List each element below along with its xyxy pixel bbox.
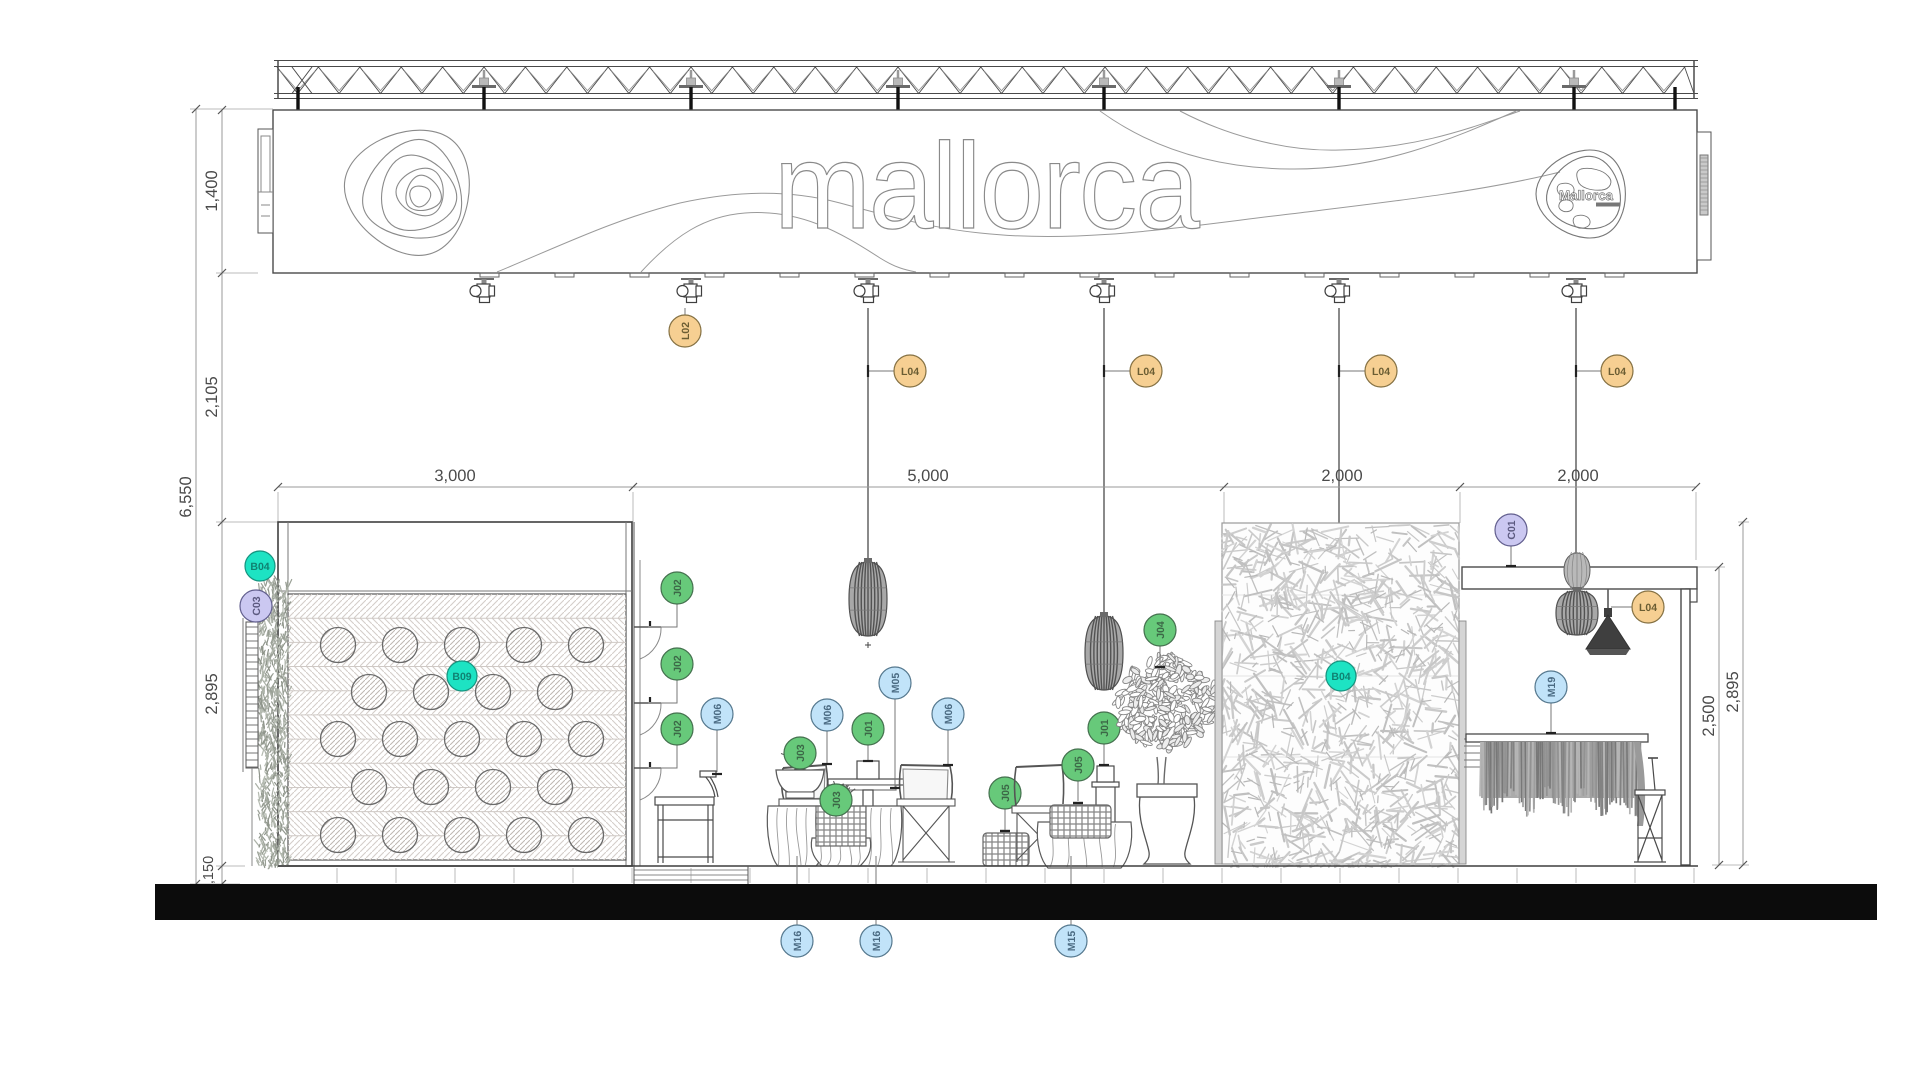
svg-text:M16: M16 (792, 931, 804, 952)
svg-text:J03: J03 (795, 744, 807, 762)
svg-text:2,895: 2,895 (203, 673, 221, 714)
svg-text:J05: J05 (1000, 784, 1012, 802)
svg-text:1,400: 1,400 (203, 170, 221, 211)
svg-text:M06: M06 (943, 704, 955, 725)
svg-text:L02: L02 (680, 322, 692, 340)
svg-text:L04: L04 (1372, 366, 1390, 378)
svg-text:mallorca: mallorca (774, 118, 1200, 254)
svg-text:2,500: 2,500 (1700, 695, 1718, 736)
svg-text:L04: L04 (1639, 602, 1657, 614)
svg-text:J02: J02 (672, 720, 684, 738)
svg-text:J02: J02 (672, 579, 684, 597)
svg-text:J02: J02 (672, 655, 684, 673)
svg-text:6,550: 6,550 (177, 476, 195, 517)
svg-text:M06: M06 (712, 704, 724, 725)
svg-text:J05: J05 (1073, 756, 1085, 774)
svg-text:2,895: 2,895 (1724, 671, 1742, 712)
svg-text:M06: M06 (822, 705, 834, 726)
svg-text:Mallorca: Mallorca (1559, 188, 1613, 203)
svg-text:B04: B04 (1331, 671, 1350, 683)
svg-text:C01: C01 (1506, 520, 1518, 539)
svg-text:5,000: 5,000 (907, 467, 948, 485)
svg-text:M16: M16 (871, 931, 883, 952)
svg-text:L04: L04 (901, 366, 919, 378)
svg-text:M19: M19 (1546, 677, 1558, 698)
svg-text:B04: B04 (250, 561, 269, 573)
svg-text:M05: M05 (890, 673, 902, 694)
svg-text:C03: C03 (251, 596, 263, 615)
svg-text:2,000: 2,000 (1557, 467, 1598, 485)
svg-text:J01: J01 (863, 720, 875, 738)
svg-text:L04: L04 (1137, 366, 1155, 378)
svg-text:J03: J03 (831, 791, 843, 809)
svg-text:J04: J04 (1155, 621, 1167, 639)
svg-text:B09: B09 (452, 671, 471, 683)
svg-text:2,000: 2,000 (1321, 467, 1362, 485)
svg-text:2,105: 2,105 (203, 376, 221, 417)
svg-text:J01: J01 (1099, 719, 1111, 737)
svg-text:L04: L04 (1608, 366, 1626, 378)
svg-text:3,000: 3,000 (434, 467, 475, 485)
svg-text:M15: M15 (1066, 931, 1078, 952)
